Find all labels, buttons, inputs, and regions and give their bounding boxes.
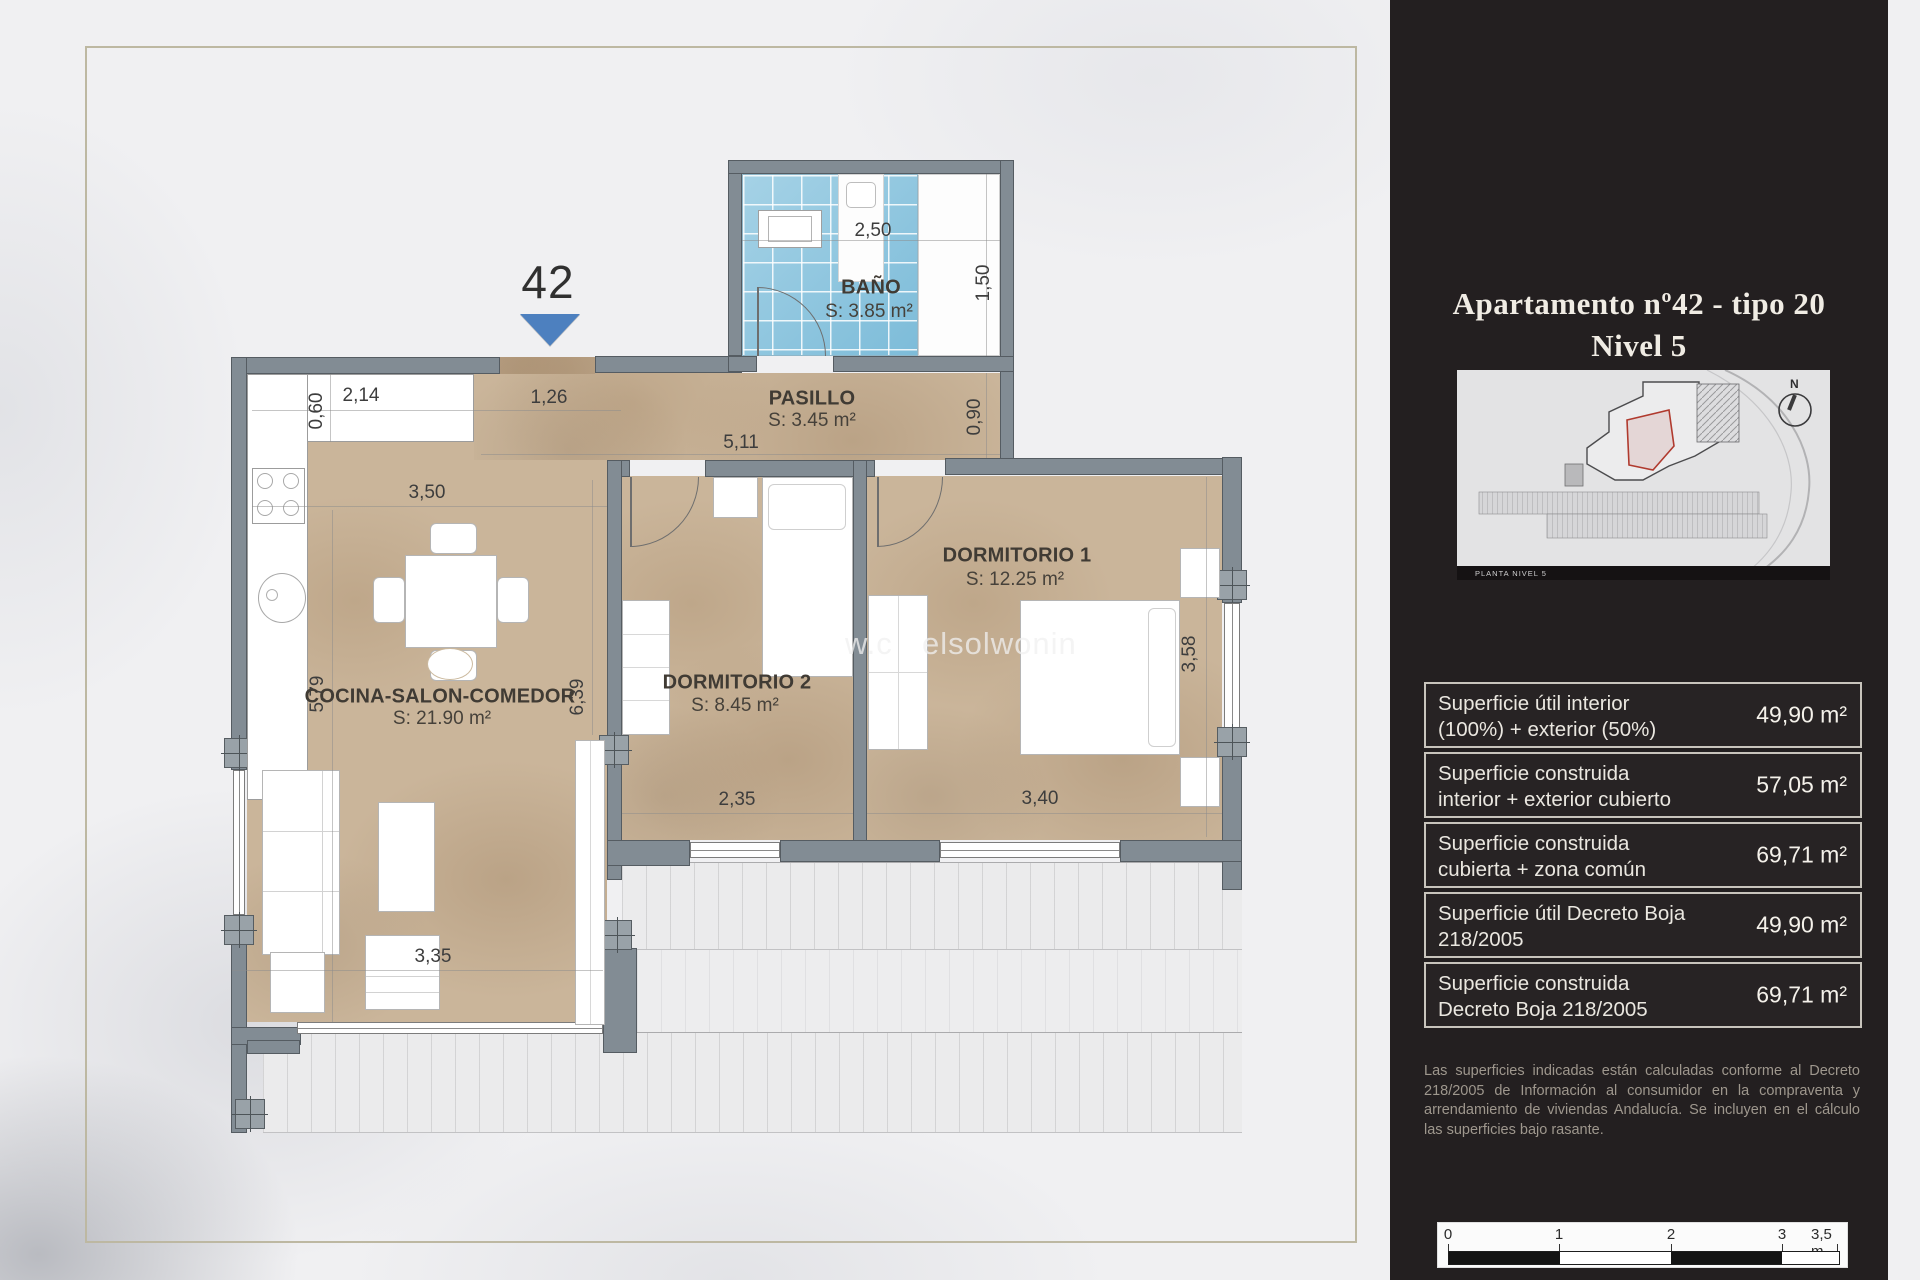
wall [231, 357, 247, 770]
dimension-line [867, 813, 1222, 814]
room-area-bano: S: 3.85 m² [825, 301, 913, 323]
wall-section-marker [1217, 570, 1247, 600]
surface-label-line2: Decreto Boja 218/2005 [1438, 997, 1648, 1023]
surface-label-line2: (100%) + exterior (50%) [1438, 717, 1656, 743]
wall [705, 460, 875, 477]
room-area-dormitorio1: S: 12.25 m² [966, 569, 1064, 591]
pillow [768, 484, 846, 530]
scale-tick-label: 0 [1444, 1226, 1452, 1243]
dimension-label: 1,50 [973, 265, 995, 302]
surface-table-row: Superficie útil Decreto Boja 218/2005 49… [1424, 892, 1862, 958]
stove-burner [257, 500, 273, 516]
dimension-label: 3,40 [1022, 788, 1059, 810]
panel-title: Apartamento nº42 - tipo 20 [1390, 286, 1888, 322]
map-terrace-rows [1479, 492, 1759, 514]
room-label-pasillo: PASILLO [769, 388, 856, 411]
sliding-glass-door [297, 1022, 603, 1034]
window [233, 770, 245, 915]
wall [607, 460, 622, 880]
door-leaf-bano [757, 287, 759, 356]
room-label-dormitorio1: DORMITORIO 1 [943, 545, 1092, 568]
surface-label: Superficie útil interior (100%) + exteri… [1438, 691, 1656, 743]
door-leaf-dormitorio1 [877, 477, 879, 547]
surface-label-line1: Superficie útil interior [1438, 691, 1656, 717]
dimension-label: 3,50 [409, 482, 446, 504]
terrace-deck-middle [637, 950, 1242, 1032]
nightstand [1180, 548, 1220, 598]
chair [497, 577, 529, 623]
wall [607, 840, 690, 866]
page: 2,50 1,50 0,90 5,11 1,26 2,14 0,60 3,50 … [0, 0, 1920, 1280]
room-label-cocina: COCINA-SALON-COMEDOR [305, 686, 576, 709]
pillow [1148, 608, 1176, 747]
wall-section-marker [235, 1099, 265, 1129]
surface-label-line2: cubierta + zona común [1438, 857, 1646, 883]
scale-tick [1448, 1244, 1449, 1251]
surface-label-line1: Superficie construida [1438, 971, 1648, 997]
surface-label: Superficie construida cubierta + zona co… [1438, 831, 1646, 883]
dimension-line [481, 454, 1000, 455]
dimension-line [1206, 477, 1207, 837]
chair [373, 577, 405, 623]
entry-marker-icon [520, 314, 580, 346]
stove-burner [283, 500, 299, 516]
surface-table-row: Superficie construida interior + exterio… [1424, 752, 1862, 818]
dimension-label: 5,11 [723, 432, 759, 454]
wall [833, 356, 1014, 372]
window [1224, 603, 1240, 730]
dimension-label: 2,14 [343, 385, 380, 407]
entry-threshold [500, 357, 595, 374]
wall [728, 356, 757, 372]
dimension-line [232, 970, 603, 971]
window [940, 842, 1120, 858]
dimension-line [330, 374, 331, 442]
compass-north-label: N [1790, 377, 1799, 391]
scale-segment [1449, 1252, 1560, 1264]
wall [595, 356, 742, 373]
floor-plan: 2,50 1,50 0,90 5,11 1,26 2,14 0,60 3,50 … [0, 0, 1390, 1280]
ceiling-lamp [427, 648, 473, 680]
unit-number: 42 [521, 255, 574, 309]
wall-section-marker [224, 915, 254, 945]
bathroom-sink-basin [768, 216, 812, 242]
scale-bar-segments [1448, 1251, 1840, 1265]
dimension-label: 3,58 [1179, 636, 1201, 673]
wall-section-marker [602, 920, 632, 950]
door-leaf-dormitorio2 [630, 477, 632, 547]
nightstand [1180, 757, 1220, 807]
wall [603, 948, 637, 1053]
disclaimer-text: Las superficies indicadas están calculad… [1424, 1062, 1860, 1141]
site-plan-svg: N PLANTA NIVEL 5 [1457, 370, 1830, 580]
scale-tick-label: 1 [1555, 1226, 1563, 1243]
wall [728, 160, 742, 356]
dimension-label: 2,50 [855, 220, 892, 242]
surface-label: Superficie construida Decreto Boja 218/2… [1438, 971, 1648, 1023]
dimension-line [622, 813, 853, 814]
sofa-chaise [270, 952, 325, 1013]
scale-segment [1671, 1252, 1782, 1264]
surface-value: 49,90 m² [1756, 912, 1847, 939]
dimension-label: 2,35 [719, 789, 756, 811]
dimension-label: 3,35 [415, 946, 452, 968]
dining-table [405, 555, 497, 648]
site-plan-map: N PLANTA NIVEL 5 [1457, 370, 1830, 580]
dimension-label: 0,60 [306, 393, 328, 430]
nightstand [713, 477, 758, 518]
map-caption: PLANTA NIVEL 5 [1475, 569, 1547, 578]
dimension-label: 0,90 [964, 399, 986, 436]
map-terrace-rows [1547, 514, 1767, 538]
room-label-dormitorio2: DORMITORIO 2 [663, 672, 812, 695]
dimension-line [332, 510, 333, 1022]
surface-table-row: Superficie útil interior (100%) + exteri… [1424, 682, 1862, 748]
surface-label-line2: 218/2005 [1438, 927, 1685, 953]
kitchen-sink-drain [266, 589, 278, 601]
dimension-label: 1,26 [531, 387, 568, 409]
scale-bar: 0 1 2 3 3,5 m [1437, 1222, 1848, 1268]
coffee-table [378, 802, 435, 912]
window [690, 842, 780, 858]
stove-burner [257, 473, 273, 489]
dimension-line [986, 373, 987, 458]
room-area-dormitorio2: S: 8.45 m² [691, 695, 779, 717]
wall-section-marker [1217, 727, 1247, 757]
surface-label-line1: Superficie construida [1438, 831, 1646, 857]
surface-value: 69,71 m² [1756, 842, 1847, 869]
surface-value: 57,05 m² [1756, 772, 1847, 799]
surface-label-line1: Superficie construida [1438, 761, 1671, 787]
surface-label: Superficie construida interior + exterio… [1438, 761, 1671, 813]
map-block [1565, 464, 1583, 486]
room-label-bano: BAÑO [841, 277, 901, 300]
stove-burner [283, 473, 299, 489]
map-building-hatched [1697, 384, 1739, 442]
dimension-line [252, 506, 607, 507]
surface-value: 69,71 m² [1756, 982, 1847, 1009]
scale-tick-label: 3 [1778, 1226, 1786, 1243]
scale-tick [1559, 1244, 1560, 1251]
terrace-deck-salon [263, 1032, 1242, 1133]
dimension-line [592, 480, 593, 735]
scale-tick [1671, 1244, 1672, 1251]
kitchen-sink [258, 573, 306, 623]
wall [945, 458, 1242, 475]
wall [247, 1040, 300, 1054]
surface-table-row: Superficie construida Decreto Boja 218/2… [1424, 962, 1862, 1028]
surface-label: Superficie útil Decreto Boja 218/2005 [1438, 901, 1685, 953]
room-area-cocina: S: 21.90 m² [393, 708, 491, 730]
sofa [262, 770, 340, 955]
surface-value: 49,90 m² [1756, 702, 1847, 729]
watermark: w.c [845, 626, 893, 662]
info-panel: Apartamento nº42 - tipo 20 Nivel 5 [1390, 0, 1888, 1280]
scale-tick [1782, 1244, 1783, 1251]
closet [622, 600, 670, 735]
scale-tick-label: 2 [1667, 1226, 1675, 1243]
surface-label-line2: interior + exterior cubierto [1438, 787, 1671, 813]
room-area-pasillo: S: 3.45 m² [768, 410, 856, 432]
scale-tick [1837, 1244, 1838, 1251]
watermark: elsolwonin [922, 626, 1077, 662]
tv-unit [575, 740, 605, 1025]
wall [780, 840, 940, 862]
wardrobe [868, 595, 928, 750]
wall [1120, 840, 1242, 862]
wall [728, 160, 1014, 174]
toilet-tank [846, 182, 876, 208]
surface-table-row: Superficie construida cubierta + zona co… [1424, 822, 1862, 888]
chair [430, 523, 477, 554]
terrace-deck-bedrooms [622, 862, 1242, 950]
surface-label-line1: Superficie útil Decreto Boja [1438, 901, 1685, 927]
panel-subtitle: Nivel 5 [1390, 328, 1888, 364]
wall [1000, 160, 1014, 460]
wall [231, 357, 500, 374]
